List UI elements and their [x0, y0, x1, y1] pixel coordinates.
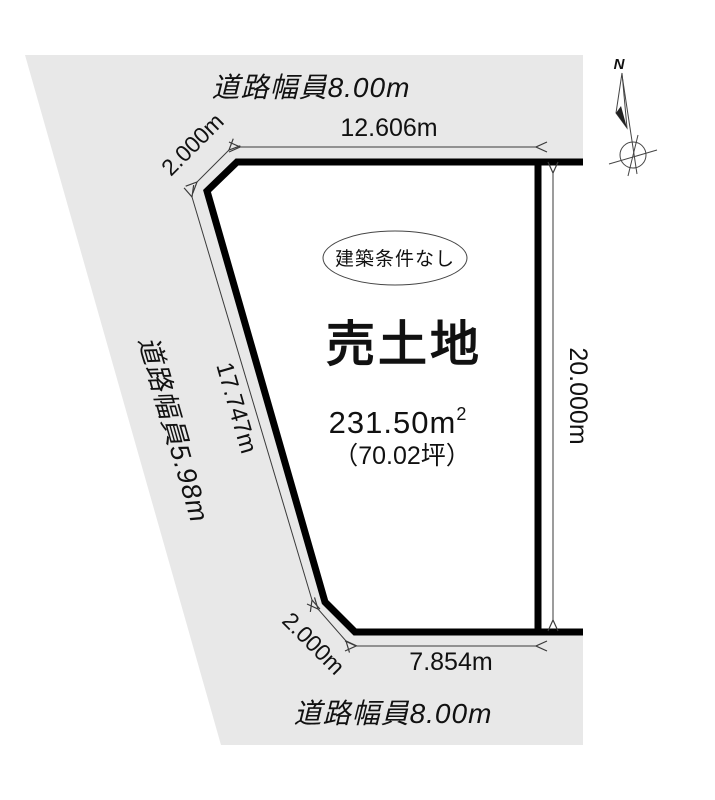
north-compass-icon: N	[609, 56, 657, 176]
parcel-area-tsubo: （70.02坪）	[333, 442, 471, 470]
parcel-area-value: 231.50m2	[329, 404, 468, 440]
dim-label-right: 20.000m	[564, 347, 592, 444]
site-plan-diagram: 道路幅員8.00m 道路幅員5.98m 道路幅員8.00m 12.606m 2.…	[0, 0, 715, 800]
badge-label: 建築条件なし	[335, 248, 455, 270]
parcel-title: 売土地	[326, 318, 482, 372]
site-plan-svg: 道路幅員8.00m 道路幅員5.98m 道路幅員8.00m 12.606m 2.…	[0, 0, 715, 800]
dim-label-top: 12.606m	[340, 114, 437, 142]
road-width-label-bottom: 道路幅員8.00m	[294, 698, 493, 729]
road-width-label-top: 道路幅員8.00m	[212, 72, 411, 103]
compass-n-label: N	[614, 56, 626, 73]
dim-label-bottom: 7.854m	[409, 648, 492, 676]
